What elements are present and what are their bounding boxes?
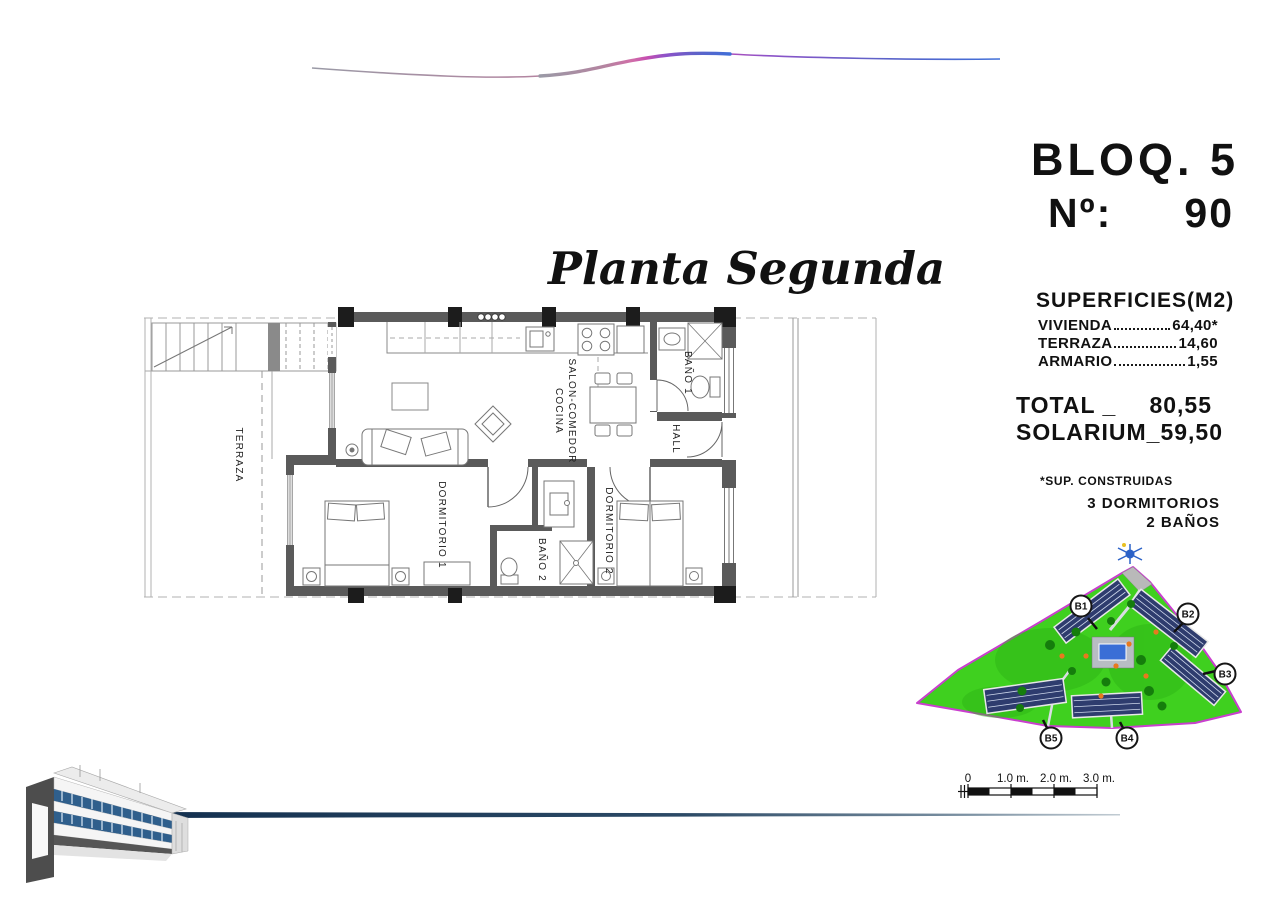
pool xyxy=(1099,644,1126,660)
room-label-bano2: BAÑO 2 xyxy=(536,538,549,582)
sofa xyxy=(362,429,468,465)
stove xyxy=(578,324,614,355)
room-label-hall: HALL xyxy=(670,424,681,454)
room-label-terraza: TERRAZA xyxy=(233,427,244,482)
scale-label-0: 0 xyxy=(965,773,971,785)
block-badge-b2: B2 xyxy=(1182,610,1195,621)
dotted-leader xyxy=(1114,364,1185,366)
scale-label-1: 1.0 m. xyxy=(997,773,1029,785)
compass-icon xyxy=(1118,543,1142,564)
room-label-salon: SALON-COMEDOR xyxy=(566,358,577,463)
block-badge-b4: B4 xyxy=(1121,734,1134,745)
surface-label: ARMARIO xyxy=(1038,353,1112,370)
scale-label-2: 2.0 m. xyxy=(1040,773,1072,785)
footer-line xyxy=(150,808,1120,822)
surface-value: 1,55 xyxy=(1187,353,1218,370)
surface-row-vivienda: VIVIENDA 64,40* xyxy=(1038,317,1218,335)
living-furniture xyxy=(346,383,511,465)
block-title: BLOQ. 5 xyxy=(1030,134,1240,186)
bathrooms-count: 2 BAÑOS xyxy=(1038,513,1220,532)
bedrooms-count: 3 DORMITORIOS xyxy=(1038,494,1220,513)
surface-row-armario: ARMARIO 1,55 xyxy=(1038,353,1218,371)
surface-label: VIVIENDA xyxy=(1038,317,1112,334)
block-badge-b5: B5 xyxy=(1045,734,1058,745)
coffee-table xyxy=(392,383,428,410)
room-label-dorm2: DORMITORIO 2 xyxy=(603,487,614,575)
unit-number-prefix: Nº: xyxy=(1048,190,1112,237)
solarium-value: 59,50 xyxy=(1160,419,1223,446)
dotted-leader xyxy=(1114,328,1170,330)
surfaces-table: VIVIENDA 64,40* TERRAZA 14,60 ARMARIO 1,… xyxy=(1038,317,1218,371)
block-badge-b3: B3 xyxy=(1219,670,1232,681)
unit-number-value: 90 xyxy=(1184,190,1234,237)
total-value: 80,55 xyxy=(1149,392,1212,419)
surface-row-terraza: TERRAZA 14,60 xyxy=(1038,335,1218,353)
plan-title: Planta Segunda xyxy=(548,242,878,295)
surface-label: TERRAZA xyxy=(1038,335,1112,352)
total-label: TOTAL _ xyxy=(1016,392,1116,419)
features-block: 3 DORMITORIOS 2 BAÑOS xyxy=(1038,494,1220,532)
room-label-dorm1: DORMITORIO 1 xyxy=(436,481,447,569)
scale-label-3: 3.0 m. xyxy=(1083,773,1115,785)
solarium-label: SOLARIUM_ xyxy=(1016,419,1160,446)
room-label-bano1: BAÑO 1 xyxy=(682,351,695,395)
surface-value: 14,60 xyxy=(1178,335,1218,352)
unit-number-line: Nº: 90 xyxy=(1048,190,1234,237)
floor-plan: TERRAZA SALON-COMEDOR COCINA BAÑO 1 HALL… xyxy=(140,303,880,603)
plan-sheet: BLOQ. 5 Nº: 90 Planta Segunda SUPERFICIE… xyxy=(0,0,1280,904)
solarium-row: SOLARIUM_ 59,50 xyxy=(1016,419,1212,446)
block-badge-b1: B1 xyxy=(1075,602,1088,613)
surfaces-title: SUPERFICIES(M2) xyxy=(1036,289,1226,313)
room-label-cocina: COCINA xyxy=(553,388,564,434)
surface-value: 64,40* xyxy=(1172,317,1218,334)
totals-block: TOTAL _ 80,55 SOLARIUM_ 59,50 xyxy=(1016,392,1212,446)
building-render xyxy=(20,763,235,898)
swoosh-graphic xyxy=(300,30,1010,90)
scale-bar-graphic xyxy=(958,784,1097,798)
site-plan: B1 B2 B3 B4 B5 xyxy=(900,540,1250,760)
stairs xyxy=(152,323,336,371)
toilet2 xyxy=(501,558,517,576)
dotted-leader xyxy=(1114,346,1176,348)
fridge xyxy=(617,326,644,353)
scale-bar: 0 1.0 m. 2.0 m. 3.0 m. xyxy=(955,770,1125,810)
surfaces-footnote: *SUP. CONSTRUIDAS xyxy=(1040,474,1220,488)
total-row: TOTAL _ 80,55 xyxy=(1016,392,1212,419)
dining-set xyxy=(590,373,636,436)
toilet-tank xyxy=(710,377,720,397)
